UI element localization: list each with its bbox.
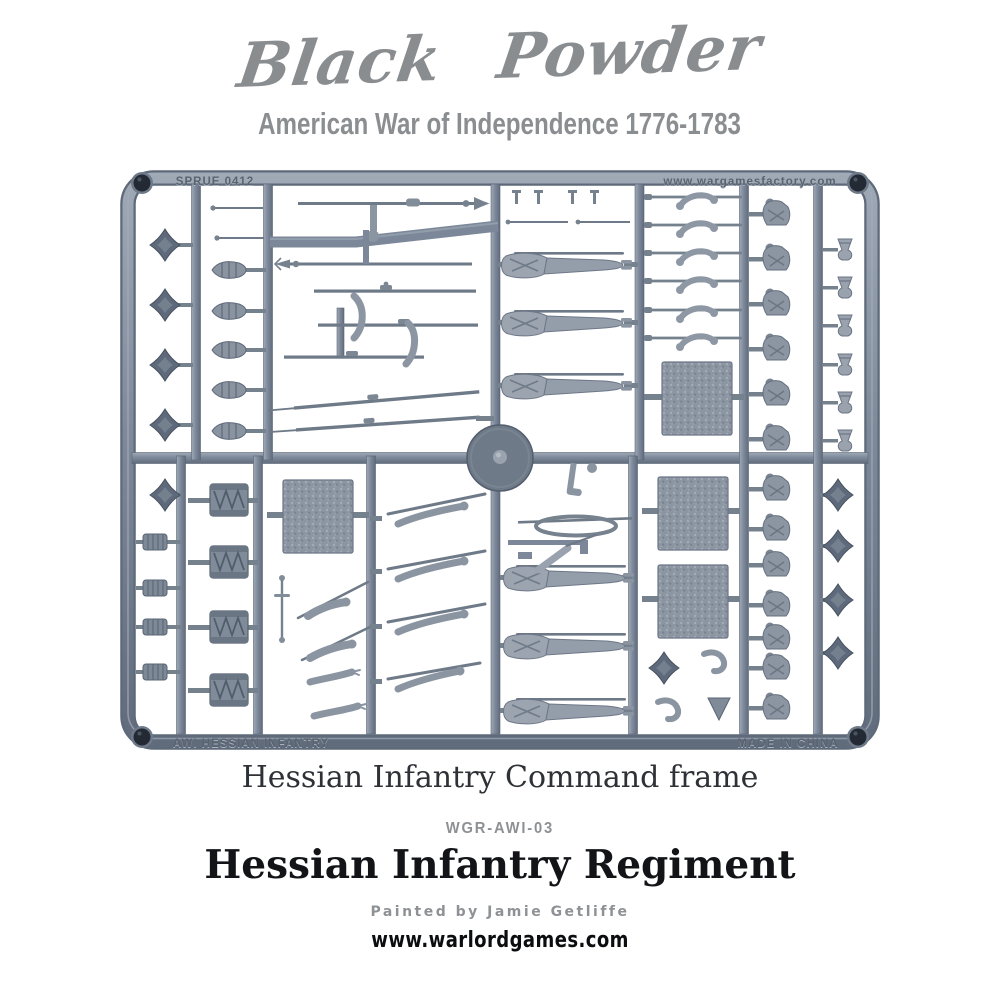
- product-page: { "header": { "brand": "Black Powder", "…: [0, 0, 1000, 1000]
- square-base: [662, 362, 732, 435]
- frame-caption: Hessian Infantry Command frame: [0, 760, 1000, 795]
- base-column: [642, 477, 740, 720]
- command-figures: [500, 463, 634, 724]
- square-base: [658, 565, 728, 638]
- marching-figures-top: [498, 190, 638, 399]
- website-url: www.warlordgames.com: [0, 928, 1000, 953]
- brand-title: Black Powder: [0, 20, 1000, 93]
- torso-column-bottom: [749, 474, 790, 720]
- drum-column: [188, 484, 258, 706]
- product-code: WGR-AWI-03: [0, 820, 1000, 838]
- arms-with-muskets: [644, 194, 744, 435]
- square-base: [283, 480, 353, 553]
- range-subtitle: American War of Independence 1776-1783: [0, 106, 1000, 142]
- sword-arm-section: [370, 494, 485, 689]
- sprue-graphic: SPRUE 0412 SPRUE 0412 www.wargamesfactor…: [118, 168, 882, 752]
- molded-text-bottom-right: MADE IN CHINA: [737, 738, 838, 750]
- cuff-column: [822, 239, 852, 451]
- molded-text-top-right: www.wargamesfactory.com: [662, 176, 836, 188]
- plume-column: [210, 205, 266, 439]
- sword-part: [274, 575, 290, 643]
- finial-column: [150, 229, 193, 441]
- tricorne-hat: [649, 652, 679, 684]
- center-hub: [467, 425, 533, 491]
- molded-text-bottom-left: AWI HESSIAN INFANTRY: [173, 738, 329, 750]
- mitre-cap-column: [820, 479, 853, 669]
- molded-text-top-left: SPRUE 0412: [176, 176, 254, 188]
- square-base: [658, 477, 728, 550]
- brand-title-text: Black Powder: [234, 11, 767, 102]
- product-title: Hessian Infantry Regiment: [0, 842, 1000, 888]
- painter-credit: Painted by Jamie Getliffe: [0, 903, 1000, 921]
- roll-column: [136, 479, 183, 680]
- torso-column-top: [749, 199, 790, 451]
- sprue-photo: SPRUE 0412 SPRUE 0412 www.wargamesfactor…: [118, 168, 882, 752]
- flag-arm-section: [267, 480, 372, 716]
